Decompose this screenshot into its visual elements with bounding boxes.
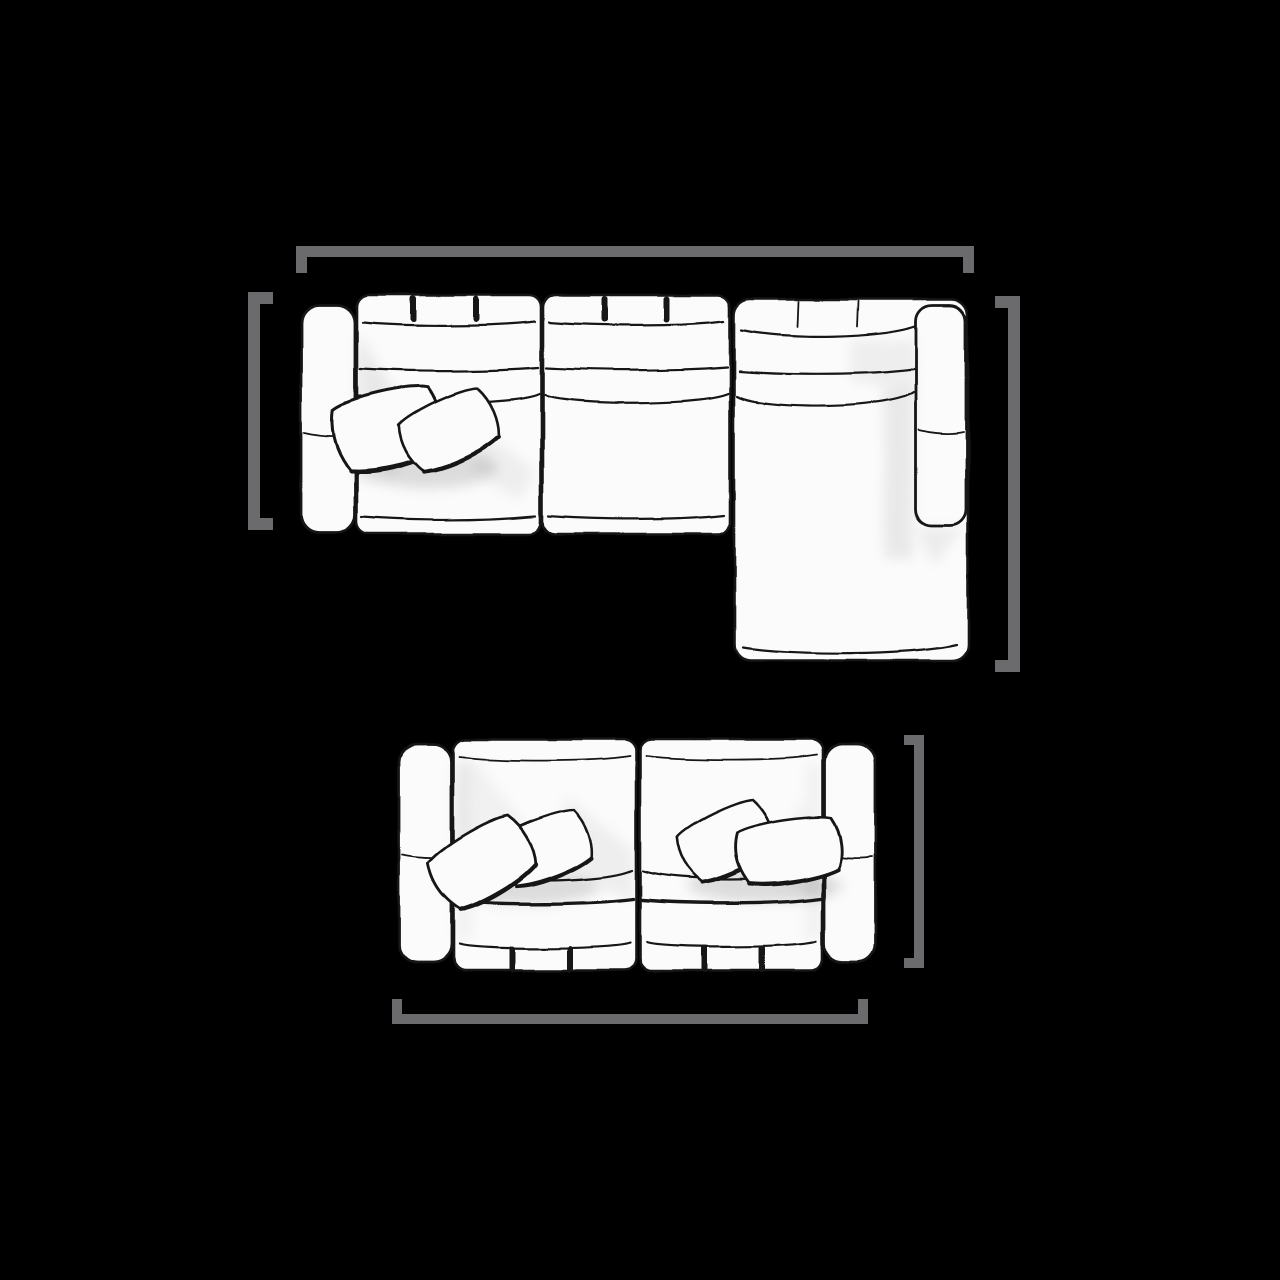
dimension-bracket-chaise-depth [995,296,1020,672]
sectional-group [248,246,1020,672]
bracket-bar [914,735,924,968]
tufting-mark [602,296,608,322]
bracket-end-left [296,246,307,273]
bracket-end-bottom [995,660,1020,672]
sofa-arm-right [916,305,966,525]
sectional-sofa-drawing [301,295,968,661]
dimension-bracket-loveseat-width [392,999,868,1024]
tufting-mark [509,946,515,973]
loveseat-sofa-drawing [399,739,875,973]
back-division-seam [797,301,798,326]
tufting-mark [759,946,765,973]
bracket-bar [248,292,260,530]
bracket-end-left [392,999,402,1024]
loveseat-group [392,735,924,1024]
bracket-end-bottom [248,518,273,530]
dimension-bracket-loveseat-depth [904,735,924,968]
chaise-arm-shadow [884,390,914,558]
bracket-bar [392,1014,868,1024]
dimension-bracket-sectional-width [296,246,974,273]
furniture-dimension-diagram [0,0,1280,1280]
tufting-mark [411,296,417,322]
tufting-mark [663,296,669,322]
bracket-end-top [248,292,273,304]
back-division-seam [857,301,858,326]
bracket-end-right [858,999,868,1024]
dimension-bracket-sectional-depth [248,292,273,530]
bracket-bar [1008,296,1020,672]
tufting-mark [472,296,478,322]
top-view-diagram [0,0,1280,1280]
seat-module-body [543,295,730,534]
bracket-bar [296,246,974,257]
bracket-end-right [963,246,974,273]
tufting-mark [701,946,707,973]
tufting-mark [567,946,573,973]
bracket-end-bottom [904,958,924,968]
bracket-end-top [995,296,1020,308]
bracket-end-top [904,735,924,745]
